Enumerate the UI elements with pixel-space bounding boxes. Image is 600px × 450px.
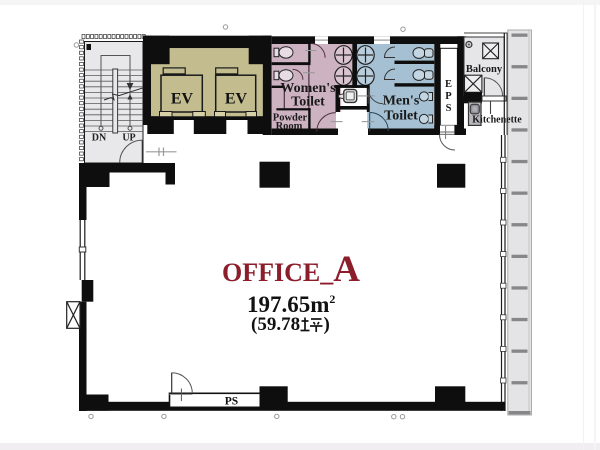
svg-text:S: S [446,103,452,114]
svg-text:Kitchenette: Kitchenette [472,115,522,126]
svg-text:P: P [445,91,452,102]
svg-text:DN: DN [92,133,107,144]
svg-text:Toilet: Toilet [384,109,418,124]
svg-text:E: E [445,79,452,90]
svg-text:): ) [324,314,330,335]
svg-text:PS: PS [225,395,238,407]
svg-text:EV: EV [225,91,248,108]
svg-text:(59.78: (59.78 [251,314,300,335]
svg-text:Toilet: Toilet [291,95,325,110]
svg-text:EV: EV [171,91,194,108]
svg-text:Balcony: Balcony [466,64,503,75]
svg-text:Men's: Men's [383,94,420,109]
